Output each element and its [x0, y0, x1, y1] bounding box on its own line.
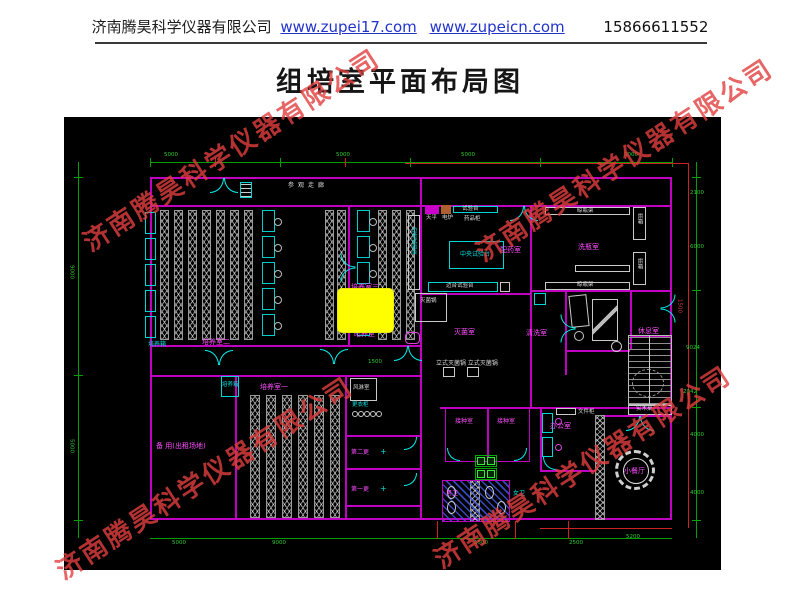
desk-icon: [542, 437, 553, 457]
culture-rack: [230, 210, 239, 340]
culture-rack: [266, 395, 276, 518]
dim-text-red: 1500: [676, 299, 682, 313]
wall: [150, 345, 420, 347]
wall: [345, 505, 420, 507]
room-label-spare: 备 用(出租场地): [156, 443, 206, 450]
hatched-wall: [595, 415, 605, 520]
cabinet-box: [556, 408, 576, 415]
clean-bench-icon: [475, 455, 497, 467]
door-icon: [561, 315, 576, 343]
clean-bench-icon: [475, 468, 497, 480]
autoclave-icon: [467, 367, 479, 377]
equipment-dot: [611, 341, 622, 352]
dim-text: 5000: [68, 439, 74, 453]
incubator-unit-icon: [262, 262, 275, 284]
dim-text: 2100: [690, 191, 704, 197]
culture-rack: [244, 210, 253, 340]
equipment-dot: [574, 331, 584, 341]
wall: [345, 375, 347, 520]
dim-text: 5000: [461, 153, 475, 159]
room-label-wc-male: 男卫: [446, 491, 458, 497]
dim-tick-red: [568, 521, 569, 539]
dim-line: [78, 162, 79, 538]
incubator-icon: [145, 316, 156, 338]
culture-rack: [216, 210, 225, 340]
wall: [345, 468, 420, 470]
room-label-change2: 第二更: [351, 450, 369, 456]
panel-box: [240, 182, 252, 198]
link-zupei17[interactable]: www.zupei17.com: [280, 18, 416, 36]
dim-text: 5000: [336, 153, 350, 159]
equip-label-incubator: 培养箱: [148, 342, 166, 348]
dim-tick-red: [515, 521, 516, 539]
incubator-unit-icon: [357, 236, 370, 258]
equip-label-sidebench: 边台试验台: [446, 284, 474, 290]
highlight-box: [337, 288, 394, 333]
phone-number: 15866611552: [603, 18, 708, 36]
dim-text: 4000: [690, 433, 704, 439]
room-label-office: 办公室: [550, 423, 571, 430]
logo-box: [425, 206, 439, 214]
plus-mark: +: [380, 448, 387, 456]
culture-rack: [174, 210, 183, 340]
dim-line: [150, 538, 672, 539]
incubator-unit-icon: [357, 210, 370, 232]
incubator-unit-icon: [357, 262, 370, 284]
equip-label-woodtable: 实木桌: [636, 407, 653, 413]
dim-text: 2500: [569, 541, 583, 547]
room-label-inoculation1: 接种室: [455, 419, 473, 425]
wall: [530, 205, 532, 407]
header-divider: [95, 42, 707, 44]
page-header: 济南腾昊科学仪器有限公司 www.zupei17.com www.zupeicn…: [0, 16, 800, 37]
dim-tick: [692, 290, 701, 291]
wall: [487, 407, 489, 462]
link-zupeicn[interactable]: www.zupeicn.com: [430, 18, 565, 36]
room-label-sterilization: 灭菌室: [454, 329, 475, 336]
equipment-box: [592, 299, 618, 341]
equip-label-centerbench: 中央试验台: [460, 252, 490, 258]
dim-text: 2042: [683, 390, 697, 396]
culture-rack: [314, 395, 324, 518]
incubator-icon: [145, 238, 156, 260]
wall: [420, 375, 422, 520]
dim-line-red: [405, 163, 688, 164]
incubator-unit-icon: [262, 210, 275, 232]
dim-tick: [74, 375, 83, 376]
room-label-pharmacy: 配药室: [500, 247, 521, 254]
room-label-corridor: 参观走廊: [288, 183, 328, 189]
equip-label-filecabinet: 文件柜: [578, 410, 595, 416]
room-label-culture1: 培养室一: [260, 384, 288, 391]
toilet-outline: [442, 480, 510, 522]
dim-text: 9000: [272, 541, 286, 547]
incubator-unit-icon: [262, 288, 275, 310]
dim-text: 1500: [474, 541, 488, 547]
culture-rack: [160, 210, 169, 340]
dim-tick: [692, 407, 701, 408]
culture-rack: [325, 210, 334, 340]
dim-text: 6000: [690, 245, 704, 251]
room-label-bottlewash: 洗瓶室: [578, 244, 599, 251]
wall: [530, 290, 672, 292]
dim-text: 9000: [68, 265, 74, 279]
culture-rack: [282, 395, 292, 518]
wall: [150, 375, 420, 377]
dim-text: 9024: [686, 346, 700, 352]
equip-label-oven: 烘箱: [636, 258, 642, 269]
shelf: [575, 265, 630, 272]
dim-tick: [692, 177, 701, 178]
locker-dot: [376, 411, 382, 417]
equip-label-benchtop: 试验台: [462, 207, 479, 213]
equip-label-autoclaves: 立式灭菌锅 立式灭菌锅: [436, 361, 498, 367]
cabinet-box: [534, 293, 546, 305]
dim-text: 3000: [624, 153, 638, 159]
culture-rack: [250, 395, 260, 518]
dim-tick-red: [215, 158, 216, 167]
incubator-unit-icon: [262, 236, 275, 258]
equip-label-oven: 烘箱: [636, 213, 642, 224]
room-label-wc-female: 女卫: [513, 491, 525, 497]
equip-label-incubator: 培养箱: [222, 383, 239, 389]
dim-text: 5000: [172, 541, 186, 547]
autoclave-icon: [443, 367, 455, 377]
sink-icon: [405, 332, 420, 344]
dim-tick-red: [345, 158, 346, 167]
door-icon: [341, 254, 356, 282]
page: 济南腾昊科学仪器有限公司 www.zupei17.com www.zupeicn…: [0, 0, 800, 600]
sink-icon: [500, 282, 510, 292]
room-label-dining: 小餐厅: [624, 468, 645, 475]
dim-text: 5000: [164, 153, 178, 159]
dim-line-red: [540, 528, 672, 529]
door-icon: [661, 295, 676, 323]
dim-tick: [74, 520, 83, 521]
company-name: 济南腾昊科学仪器有限公司: [92, 18, 272, 36]
culture-rack: [298, 395, 308, 518]
culture-rack: [330, 395, 340, 518]
incubator-icon: [145, 264, 156, 286]
dim-tick: [280, 158, 281, 167]
room-label-inoculation2: 接种室: [497, 419, 515, 425]
wall: [540, 470, 596, 472]
incubator-unit-icon: [262, 314, 275, 336]
equip-label-sterilizer: 灭菌锅: [420, 299, 437, 305]
equip-label-rack: 晾瓶架: [577, 209, 594, 215]
dim-tick: [74, 177, 83, 178]
room-label-airshower: 风淋室: [353, 386, 370, 392]
room-label-change1: 第一更: [351, 487, 369, 493]
door-icon: [205, 350, 233, 365]
door-icon: [210, 178, 238, 193]
door-icon: [626, 416, 654, 431]
dim-text: 5200: [626, 535, 640, 541]
incubator-icon: [145, 212, 156, 234]
equip-label-sidebench: 边台试验台: [410, 227, 416, 255]
cad-canvas: 5000 5000 5000 3000 9000 5000 2100 6000 …: [64, 117, 721, 570]
equip-label-locker: 更衣柜: [352, 403, 369, 409]
door-icon: [510, 206, 538, 221]
cabinet-box: [441, 205, 451, 214]
room-label-washing: 清洗室: [526, 330, 547, 337]
equip-label-balance: 天平: [426, 216, 437, 222]
plus-mark: +: [380, 485, 387, 493]
equip-label-stove: 电炉: [442, 216, 453, 222]
chair-dot: [555, 444, 562, 451]
dim-tick: [692, 520, 701, 521]
page-title: 组培室平面布局图: [0, 60, 800, 99]
room-label-culture2: 培养室二: [202, 339, 230, 346]
culture-rack: [188, 210, 197, 340]
culture-rack: [202, 210, 211, 340]
dim-tick: [150, 158, 151, 167]
room-label-rest: 休息室: [638, 328, 659, 335]
door-icon: [320, 349, 348, 364]
equip-label-medcabinet: 药品柜: [464, 217, 481, 223]
stair-arc: [632, 369, 664, 397]
dim-tick-red: [437, 521, 438, 539]
equip-label-rack: 晾瓶架: [577, 283, 594, 289]
door-icon: [394, 346, 422, 361]
incubator-icon: [145, 290, 156, 312]
dim-text: 4000: [690, 491, 704, 497]
